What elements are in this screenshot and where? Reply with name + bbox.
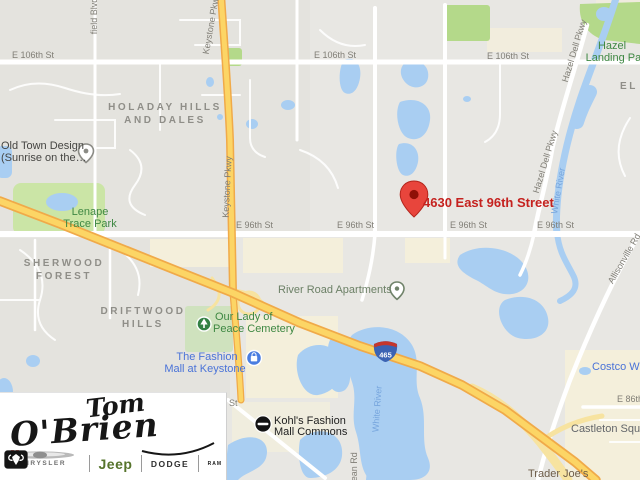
street-label-e96-1: E 96th St xyxy=(236,221,273,231)
address-marker-label[interactable]: 4630 East 96th Street xyxy=(423,196,554,210)
poi-castleton-square[interactable]: Castleton Square xyxy=(571,423,640,435)
neighborhood-holaday-line1: HOLADAY HILLS xyxy=(108,102,222,113)
street-label-field-blvd: field Blvd xyxy=(90,0,100,34)
street-label-e96-4: E 96th St xyxy=(537,221,574,231)
brand-divider xyxy=(141,455,142,472)
kohls-logo-icon[interactable] xyxy=(255,416,271,432)
neighborhood-holaday-line2: AND DALES xyxy=(124,115,206,126)
neighborhood-sherwood-line1: SHERWOOD xyxy=(24,258,105,269)
neighborhood-sherwood-line2: FOREST xyxy=(36,271,92,282)
jeep-wordmark: Jeep xyxy=(99,456,133,472)
poi-fashion-mall-line1[interactable]: The Fashion xyxy=(176,351,237,363)
fashion-mall-icon[interactable] xyxy=(247,351,262,366)
brand-divider xyxy=(198,455,199,472)
street-label-e106-2: E 106th St xyxy=(314,51,356,61)
street-label-e86: E 86th St xyxy=(617,395,640,405)
poi-hazel-landing-line2[interactable]: Landing Park xyxy=(586,52,640,64)
map-canvas[interactable]: 465 xyxy=(0,0,640,480)
poi-old-town-line1[interactable]: Old Town Design xyxy=(1,140,84,152)
ram-wordmark: RAM xyxy=(208,461,222,467)
poi-lenape-line1[interactable]: Lenape xyxy=(72,206,109,218)
street-label-e106-1: E 106th St xyxy=(12,51,54,61)
dodge-logo: DODGE xyxy=(151,459,189,469)
poi-fashion-mall-line2[interactable]: Mall at Keystone xyxy=(164,363,245,375)
brand-logos-row: CHRYSLER Jeep DODGE xyxy=(4,450,222,477)
poi-kohls-line2[interactable]: Mall Commons xyxy=(274,426,347,438)
poi-cemetery-line1[interactable]: Our Lady of xyxy=(215,311,272,323)
poi-costco[interactable]: Costco Wholesale xyxy=(592,361,640,373)
brand-divider xyxy=(89,455,90,472)
poi-lenape-line2[interactable]: Trace Park xyxy=(63,218,116,230)
street-label-e106-3: E 106th St xyxy=(487,52,529,62)
dodge-wordmark: DODGE xyxy=(151,459,189,469)
poi-hazel-landing-line1[interactable]: Hazel xyxy=(598,40,626,52)
ram-head-icon xyxy=(4,450,28,469)
street-label-dean-rd: Dean Rd xyxy=(350,452,360,480)
neighborhood-el: EL xyxy=(620,81,638,92)
street-label-e96-2: E 96th St xyxy=(337,221,374,231)
poi-trader-joes[interactable]: Trader Joe's xyxy=(528,468,588,480)
poi-river-road-apartments[interactable]: River Road Apartments xyxy=(278,284,392,296)
dealership-logo-box: Tom O'Brien CHRYSLER Jeep DODGE xyxy=(0,392,227,480)
street-label-partial: St xyxy=(229,399,238,409)
poi-old-town-line2[interactable]: (Sunrise on the… xyxy=(1,152,87,164)
neighborhood-driftwood-line2: HILLS xyxy=(122,319,164,330)
ram-logo: RAM xyxy=(208,460,222,467)
cemetery-icon[interactable] xyxy=(197,317,211,331)
poi-cemetery-line2[interactable]: Peace Cemetery xyxy=(213,323,295,335)
street-label-e96-3: E 96th St xyxy=(450,221,487,231)
neighborhood-driftwood-line1: DRIFTWOOD xyxy=(100,306,185,317)
i465-shield-number: 465 xyxy=(379,351,392,360)
